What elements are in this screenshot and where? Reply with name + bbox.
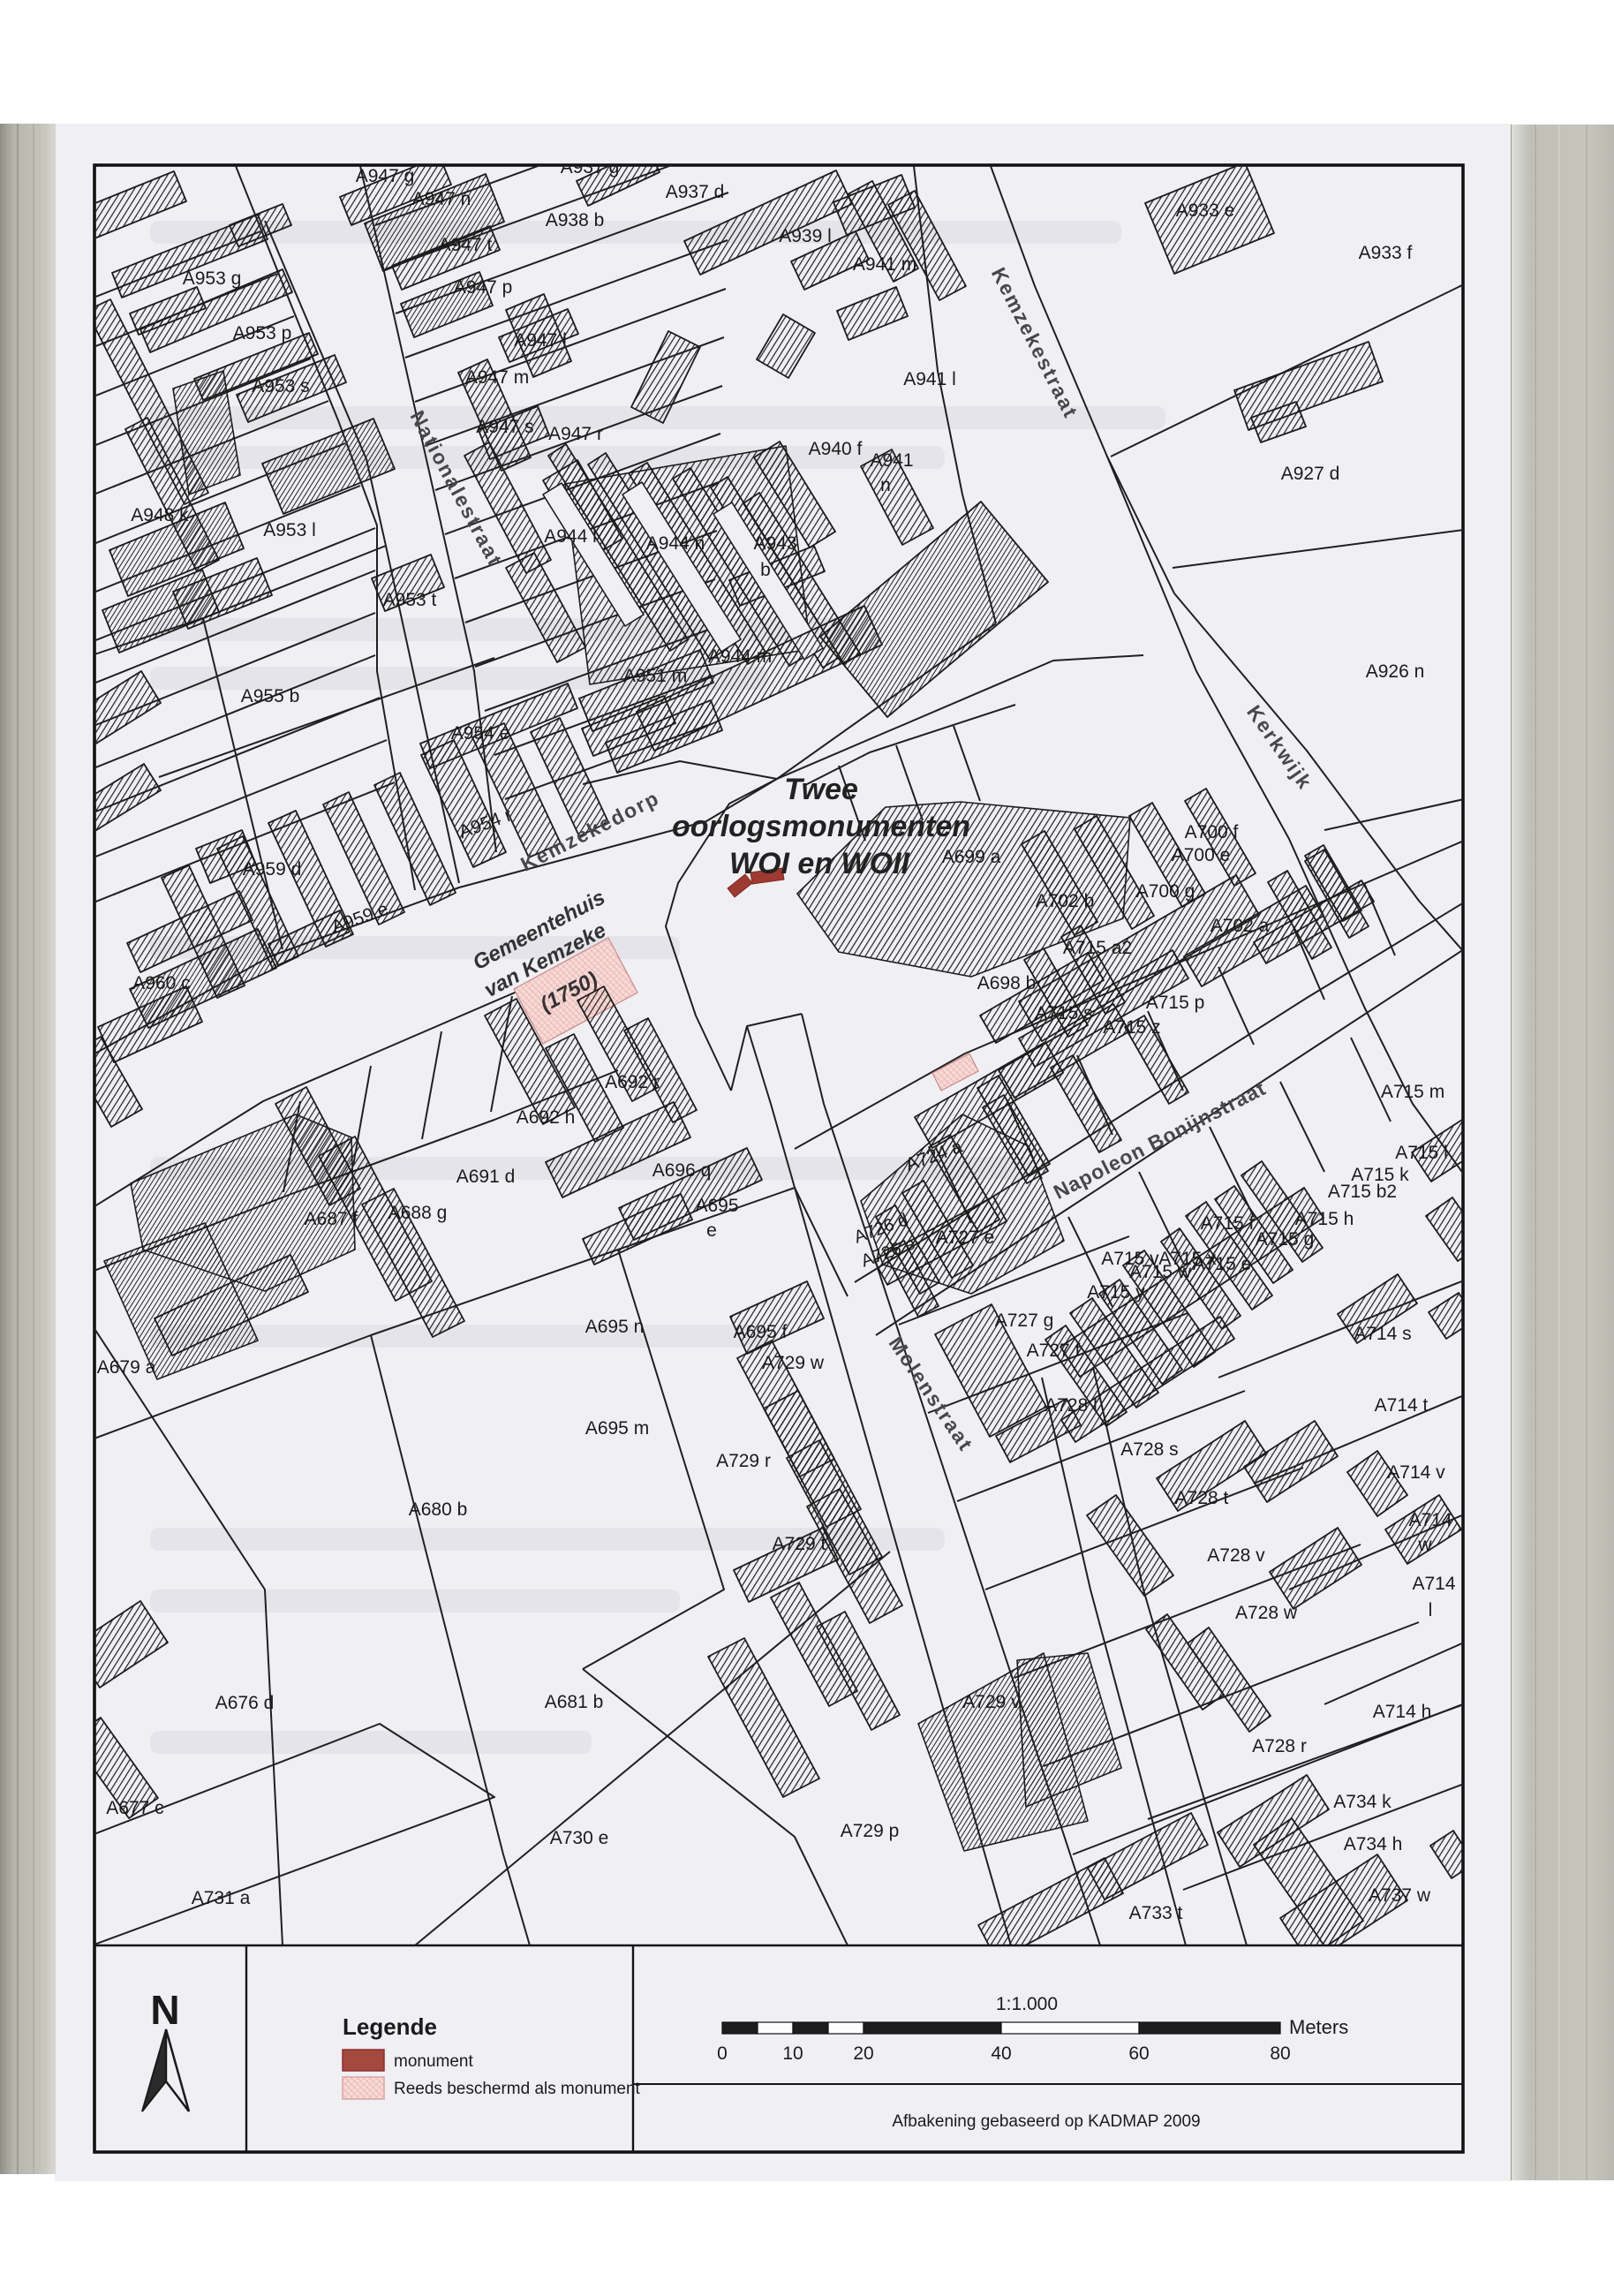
svg-text:A715 l: A715 l bbox=[1395, 1143, 1448, 1163]
svg-text:A728 v: A728 v bbox=[1207, 1545, 1265, 1566]
svg-text:n: n bbox=[880, 475, 891, 495]
svg-text:A715 z: A715 z bbox=[1103, 1017, 1160, 1038]
svg-text:A729 v: A729 v bbox=[962, 1692, 1021, 1712]
svg-text:A940 f: A940 f bbox=[809, 439, 863, 459]
svg-text:A933 e: A933 e bbox=[1176, 200, 1235, 221]
svg-text:oorlogsmonumenten: oorlogsmonumenten bbox=[672, 810, 970, 843]
svg-text:A941 m: A941 m bbox=[853, 254, 916, 275]
svg-text:A729 w: A729 w bbox=[762, 1353, 825, 1373]
svg-text:A938 b: A938 b bbox=[546, 210, 605, 230]
svg-text:A715 s: A715 s bbox=[1035, 1003, 1092, 1023]
svg-text:A731 a: A731 a bbox=[192, 1888, 251, 1908]
svg-text:A927 d: A927 d bbox=[1281, 464, 1340, 484]
svg-text:A695 f: A695 f bbox=[734, 1322, 788, 1342]
svg-text:20: 20 bbox=[853, 2043, 873, 2064]
svg-text:A714 t: A714 t bbox=[1375, 1395, 1429, 1416]
svg-text:A687 f: A687 f bbox=[305, 1209, 358, 1229]
svg-text:A695 n: A695 n bbox=[585, 1317, 645, 1337]
svg-text:A734 k: A734 k bbox=[1333, 1792, 1392, 1812]
svg-text:A715 g: A715 g bbox=[1256, 1229, 1315, 1250]
svg-text:A681 b: A681 b bbox=[545, 1692, 604, 1712]
svg-text:A728 t: A728 t bbox=[1175, 1488, 1229, 1508]
svg-text:A727 g: A727 g bbox=[995, 1310, 1054, 1331]
svg-text:A947 m: A947 m bbox=[465, 367, 529, 388]
svg-text:80: 80 bbox=[1270, 2043, 1290, 2064]
svg-text:w: w bbox=[1417, 1535, 1432, 1555]
svg-text:A943: A943 bbox=[753, 533, 796, 554]
svg-text:A953 s: A953 s bbox=[252, 376, 309, 397]
svg-text:A953 g: A953 g bbox=[183, 268, 242, 289]
svg-text:A944 l: A944 l bbox=[544, 526, 597, 547]
svg-text:A676 d: A676 d bbox=[215, 1693, 275, 1713]
svg-text:A948 k: A948 k bbox=[131, 505, 189, 525]
svg-text:A691 d: A691 d bbox=[456, 1167, 516, 1187]
svg-text:Twee: Twee bbox=[784, 773, 858, 806]
svg-text:A959 d: A959 d bbox=[243, 859, 302, 880]
svg-text:A953 t: A953 t bbox=[383, 590, 437, 610]
svg-text:e: e bbox=[706, 1220, 717, 1241]
svg-text:A933 f: A933 f bbox=[1359, 243, 1413, 263]
svg-text:monument: monument bbox=[394, 2052, 473, 2071]
svg-text:Legende: Legende bbox=[343, 2013, 437, 2040]
svg-text:Meters: Meters bbox=[1289, 2016, 1348, 2038]
svg-text:A715 y: A715 y bbox=[1087, 1282, 1145, 1303]
svg-text:A714: A714 bbox=[1408, 1510, 1452, 1530]
svg-text:A937 d: A937 d bbox=[666, 182, 725, 202]
svg-text:A700 g: A700 g bbox=[1136, 881, 1195, 902]
svg-text:A700 f: A700 f bbox=[1185, 822, 1239, 842]
svg-text:A702 a: A702 a bbox=[1210, 916, 1270, 936]
svg-text:40: 40 bbox=[991, 2043, 1011, 2064]
svg-text:A727 f: A727 f bbox=[1027, 1341, 1081, 1361]
svg-text:A695: A695 bbox=[695, 1196, 738, 1216]
svg-text:A953 l: A953 l bbox=[263, 520, 316, 540]
svg-text:A947 p: A947 p bbox=[454, 277, 513, 298]
svg-text:A737 w: A737 w bbox=[1369, 1885, 1431, 1906]
svg-text:A954 e: A954 e bbox=[451, 723, 510, 744]
svg-text:A700 e: A700 e bbox=[1172, 845, 1231, 865]
svg-text:10: 10 bbox=[782, 2043, 803, 2064]
svg-text:A939 l: A939 l bbox=[779, 226, 832, 246]
svg-text:1:1.000: 1:1.000 bbox=[996, 1994, 1058, 2014]
svg-text:A941: A941 bbox=[870, 450, 913, 471]
svg-text:A699 a: A699 a bbox=[942, 847, 1001, 867]
svg-text:A728 w: A728 w bbox=[1235, 1603, 1298, 1623]
svg-text:Afbakening gebaseerd op KADMAP: Afbakening gebaseerd op KADMAP 2009 bbox=[892, 2112, 1200, 2131]
svg-text:A677 c: A677 c bbox=[106, 1798, 163, 1818]
svg-text:A715 f: A715 f bbox=[1201, 1213, 1255, 1234]
svg-text:A695 m: A695 m bbox=[585, 1418, 649, 1439]
svg-text:A680 b: A680 b bbox=[409, 1499, 468, 1520]
svg-text:A715 w: A715 w bbox=[1129, 1262, 1192, 1282]
svg-text:A729 r: A729 r bbox=[716, 1451, 771, 1471]
svg-text:A733 t: A733 t bbox=[1129, 1903, 1183, 1923]
svg-text:A702 b: A702 b bbox=[1036, 891, 1095, 911]
svg-text:A692 h: A692 h bbox=[517, 1107, 576, 1128]
svg-text:A730 e: A730 e bbox=[550, 1828, 609, 1848]
svg-text:A715 b2: A715 b2 bbox=[1328, 1182, 1397, 1202]
svg-text:A734 h: A734 h bbox=[1344, 1834, 1403, 1854]
svg-text:A715 a2: A715 a2 bbox=[1063, 938, 1132, 958]
svg-text:A728 r: A728 r bbox=[1252, 1736, 1307, 1756]
svg-text:A944 m: A944 m bbox=[708, 646, 772, 667]
svg-text:A698 b: A698 b bbox=[977, 973, 1037, 993]
svg-text:A714 h: A714 h bbox=[1373, 1702, 1432, 1722]
svg-text:A696 q: A696 q bbox=[652, 1160, 712, 1181]
svg-text:A944 n: A944 n bbox=[646, 533, 705, 554]
svg-text:WOI en WOII: WOI en WOII bbox=[729, 847, 911, 880]
svg-text:A947 t: A947 t bbox=[439, 235, 493, 255]
svg-text:Reeds beschermd als monument: Reeds beschermd als monument bbox=[394, 2080, 641, 2098]
svg-text:A947 l: A947 l bbox=[514, 330, 567, 351]
svg-text:A714: A714 bbox=[1412, 1574, 1455, 1594]
svg-text:A960 c: A960 c bbox=[132, 973, 190, 993]
svg-text:A729 t: A729 t bbox=[773, 1534, 826, 1554]
svg-text:A728 s: A728 s bbox=[1120, 1439, 1178, 1460]
svg-text:A951 m: A951 m bbox=[623, 666, 687, 686]
svg-text:A679 a: A679 a bbox=[97, 1357, 156, 1378]
svg-text:b: b bbox=[760, 560, 771, 580]
svg-text:A955 b: A955 b bbox=[241, 686, 300, 706]
svg-text:A728 l: A728 l bbox=[1045, 1395, 1097, 1416]
svg-text:A729 p: A729 p bbox=[841, 1821, 900, 1841]
svg-text:A688 g: A688 g bbox=[388, 1203, 448, 1223]
svg-text:A947 g: A947 g bbox=[356, 166, 415, 186]
svg-text:A926 n: A926 n bbox=[1366, 661, 1425, 682]
svg-text:A947 s: A947 s bbox=[476, 417, 533, 437]
svg-text:A947 n: A947 n bbox=[412, 189, 471, 209]
svg-text:A715 p: A715 p bbox=[1146, 993, 1205, 1013]
svg-text:A715 h: A715 h bbox=[1295, 1209, 1354, 1229]
svg-text:A727 e: A727 e bbox=[936, 1227, 995, 1248]
svg-text:A714 v: A714 v bbox=[1387, 1462, 1445, 1483]
svg-text:60: 60 bbox=[1128, 2043, 1149, 2064]
svg-text:N: N bbox=[150, 1987, 179, 2033]
svg-text:A714 s: A714 s bbox=[1354, 1324, 1411, 1344]
svg-text:A953 p: A953 p bbox=[233, 323, 292, 344]
svg-text:A715 m: A715 m bbox=[1381, 1082, 1444, 1102]
svg-text:0: 0 bbox=[717, 2043, 728, 2064]
svg-text:A941 l: A941 l bbox=[903, 369, 956, 389]
svg-text:l: l bbox=[1429, 1600, 1433, 1620]
svg-text:A692 r: A692 r bbox=[605, 1072, 660, 1092]
svg-text:A947 r: A947 r bbox=[548, 424, 603, 444]
